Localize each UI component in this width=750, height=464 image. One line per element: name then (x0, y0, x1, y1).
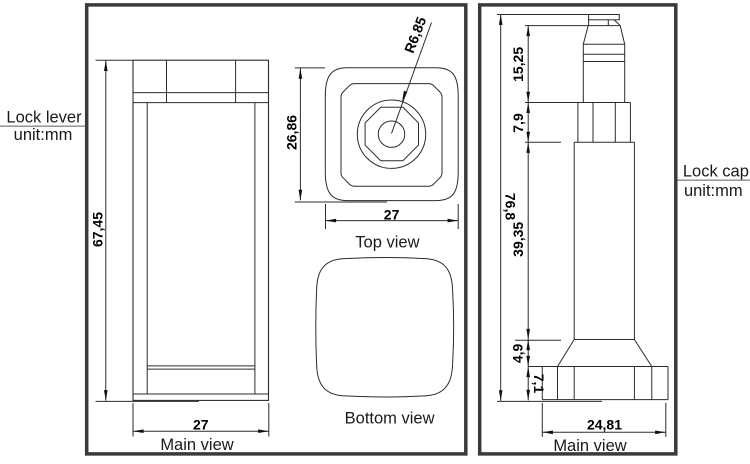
svg-text:unit:mm: unit:mm (684, 182, 743, 200)
svg-text:15,25: 15,25 (510, 47, 526, 82)
svg-text:27: 27 (193, 417, 209, 433)
svg-text:27: 27 (384, 206, 400, 222)
svg-text:76,8: 76,8 (502, 193, 518, 220)
svg-text:R6,85: R6,85 (401, 14, 429, 55)
svg-text:24,81: 24,81 (587, 417, 622, 433)
svg-text:26,86: 26,86 (283, 115, 299, 150)
svg-text:Main view: Main view (553, 437, 626, 455)
svg-text:Main view: Main view (160, 436, 233, 454)
svg-text:7,9: 7,9 (510, 113, 526, 133)
svg-text:unit:mm: unit:mm (14, 126, 73, 144)
svg-text:67,45: 67,45 (89, 212, 105, 247)
svg-text:Lock lever: Lock lever (6, 109, 82, 127)
svg-text:4,9: 4,9 (510, 343, 526, 363)
svg-text:7,1: 7,1 (531, 374, 547, 394)
svg-text:39,35: 39,35 (510, 222, 526, 257)
svg-text:Lock cap: Lock cap (683, 162, 749, 180)
svg-text:Bottom view: Bottom view (345, 410, 435, 428)
svg-text:Top view: Top view (355, 234, 419, 252)
